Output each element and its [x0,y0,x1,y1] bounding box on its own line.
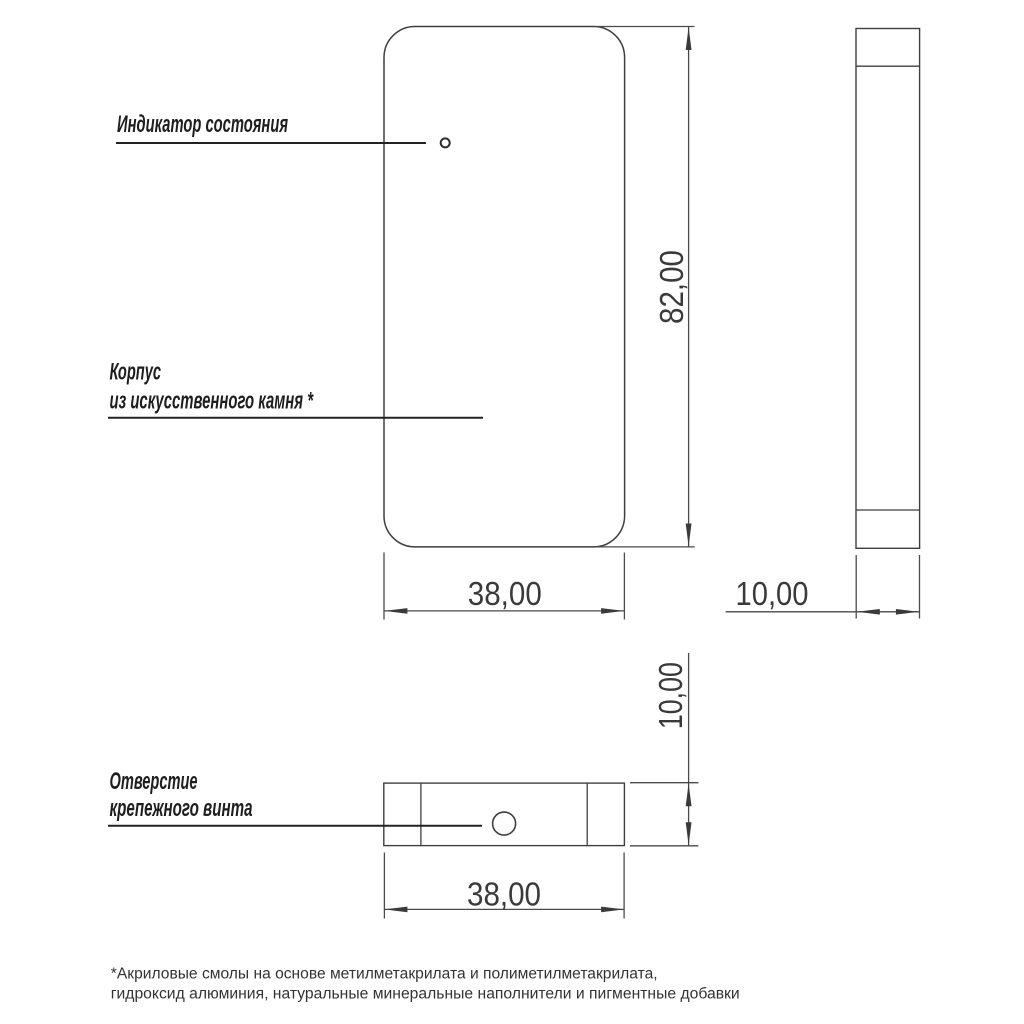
svg-text:крепежного винта: крепежного винта [110,795,253,822]
svg-text:Корпус: Корпус [110,358,162,385]
svg-text:10,00: 10,00 [736,575,809,612]
svg-text:10,00: 10,00 [652,662,689,729]
svg-text:из искусственного камня *: из искусственного камня * [110,387,315,414]
svg-text:гидроксид алюминия, натуральны: гидроксид алюминия, натуральные минераль… [111,986,740,1003]
svg-text:82,00: 82,00 [653,250,690,324]
svg-text:38,00: 38,00 [468,575,542,612]
svg-text:*Акриловые смолы на основе мет: *Акриловые смолы на основе метилметакрил… [111,965,658,982]
svg-text:Отверстие: Отверстие [110,768,198,795]
svg-text:38,00: 38,00 [467,875,541,912]
svg-text:Индикатор состояния: Индикатор состояния [117,111,288,138]
